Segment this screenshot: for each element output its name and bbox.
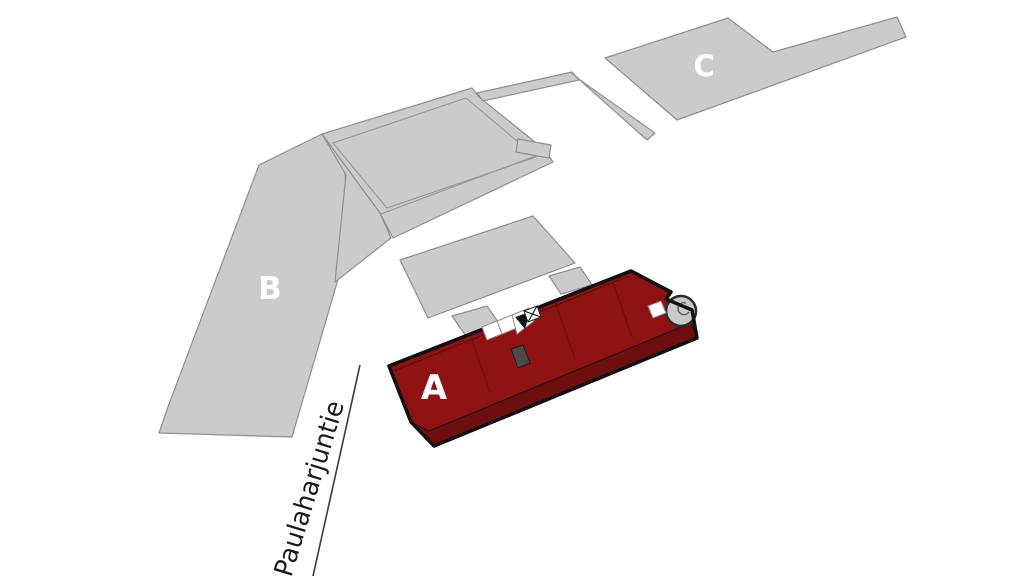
building-a-label: A [421,368,448,408]
building-c-footprint [605,17,906,120]
connector-strip-upper [477,72,579,101]
map-canvas: A B C Paulaharjuntie [0,0,1024,576]
campus-map: A B C Paulaharjuntie [0,0,1024,576]
building-b-footprint [159,134,348,437]
building-c-label: C [693,49,714,83]
building-b-label: B [258,271,282,307]
